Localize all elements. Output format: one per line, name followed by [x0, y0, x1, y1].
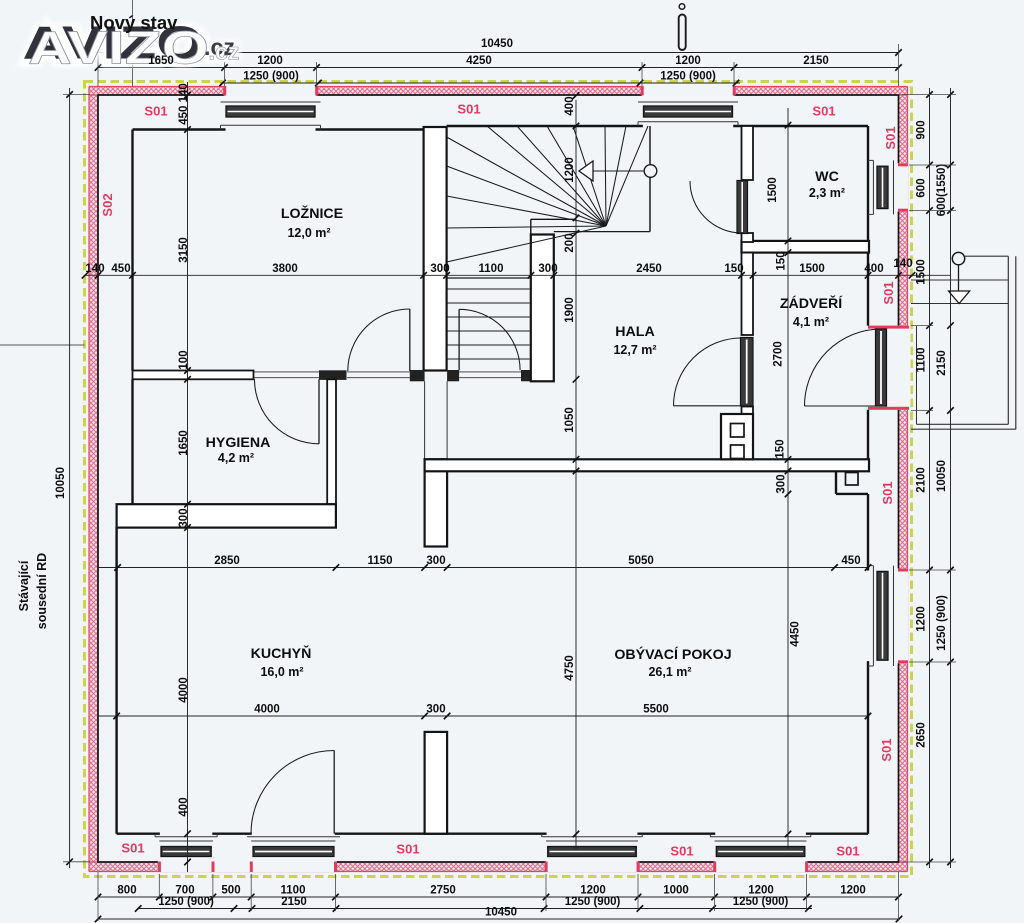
svg-text:2850: 2850 — [214, 555, 240, 567]
svg-text:100: 100 — [178, 350, 190, 369]
svg-text:300: 300 — [430, 263, 449, 275]
svg-text:1250 (900): 1250 (900) — [936, 595, 948, 651]
svg-text:700: 700 — [175, 885, 194, 897]
svg-text:450: 450 — [841, 555, 860, 567]
svg-text:S01: S01 — [121, 841, 144, 856]
svg-text:450: 450 — [111, 263, 130, 275]
svg-text:2150: 2150 — [281, 896, 307, 908]
svg-text:2100: 2100 — [916, 467, 928, 493]
svg-text:800: 800 — [117, 885, 136, 897]
svg-text:S01: S01 — [880, 481, 895, 504]
svg-text:1500: 1500 — [799, 263, 825, 275]
svg-text:2750: 2750 — [430, 885, 456, 897]
svg-text:1200: 1200 — [748, 885, 774, 897]
svg-text:1900: 1900 — [564, 297, 576, 323]
svg-text:1150: 1150 — [368, 555, 393, 567]
svg-text:4750: 4750 — [564, 655, 576, 681]
svg-text:Stávající: Stávající — [17, 560, 31, 611]
svg-text:1200: 1200 — [257, 55, 283, 67]
svg-text:S02: S02 — [100, 193, 115, 216]
svg-text:4450: 4450 — [790, 621, 802, 647]
svg-text:S01: S01 — [883, 126, 898, 149]
svg-text:150: 150 — [775, 439, 787, 458]
svg-text:2150: 2150 — [803, 55, 829, 67]
svg-text:1000: 1000 — [663, 885, 689, 897]
svg-text:200: 200 — [564, 233, 576, 252]
svg-text:4000: 4000 — [254, 704, 280, 716]
svg-text:300: 300 — [776, 474, 788, 493]
svg-text:140: 140 — [893, 258, 912, 270]
svg-text:HYGIENA: HYGIENA — [206, 435, 271, 451]
svg-text:16,0 m²: 16,0 m² — [260, 665, 303, 679]
svg-text:1200: 1200 — [916, 606, 928, 632]
svg-text:1200: 1200 — [564, 157, 576, 183]
svg-text:1250 (900): 1250 (900) — [158, 896, 214, 908]
svg-text:1200: 1200 — [840, 885, 866, 897]
svg-text:1250 (900): 1250 (900) — [565, 896, 621, 908]
svg-text:S01: S01 — [396, 842, 419, 857]
svg-text:1250 (900): 1250 (900) — [243, 71, 299, 83]
svg-text:1100: 1100 — [916, 348, 928, 373]
svg-text:4,1 m²: 4,1 m² — [793, 315, 829, 329]
svg-text:400: 400 — [178, 797, 190, 816]
svg-text:S01: S01 — [881, 281, 896, 304]
svg-text:10050: 10050 — [55, 467, 67, 499]
svg-text:2450: 2450 — [636, 263, 662, 275]
svg-text:2700: 2700 — [773, 341, 785, 367]
svg-text:ZÁDVEŘÍ: ZÁDVEŘÍ — [780, 294, 843, 312]
svg-text:450 140: 450 140 — [178, 83, 190, 125]
svg-text:10450: 10450 — [485, 907, 517, 919]
svg-text:12,7 m²: 12,7 m² — [613, 343, 656, 357]
svg-text:1250 (900): 1250 (900) — [733, 896, 789, 908]
svg-text:300: 300 — [426, 704, 445, 716]
svg-text:OBÝVACÍ POKOJ: OBÝVACÍ POKOJ — [614, 645, 731, 663]
svg-text:1250 (900): 1250 (900) — [660, 71, 716, 83]
svg-text:sousední RD: sousední RD — [35, 553, 49, 629]
svg-text:1100: 1100 — [479, 263, 504, 275]
svg-text:2,3 m²: 2,3 m² — [809, 186, 845, 200]
svg-text:600: 600 — [916, 178, 928, 197]
svg-text:2150: 2150 — [936, 350, 948, 376]
svg-text:400: 400 — [564, 96, 576, 115]
svg-text:150: 150 — [724, 263, 743, 275]
svg-text:12,0 m²: 12,0 m² — [287, 226, 330, 240]
svg-text:2650: 2650 — [916, 722, 928, 748]
svg-text:4250: 4250 — [466, 55, 492, 67]
svg-text:1200: 1200 — [675, 55, 701, 67]
svg-text:1100: 1100 — [281, 885, 306, 897]
svg-text:S01: S01 — [144, 104, 167, 119]
svg-text:5500: 5500 — [643, 704, 669, 716]
svg-text:1650: 1650 — [178, 430, 190, 456]
svg-text:5050: 5050 — [628, 555, 654, 567]
svg-text:1050: 1050 — [564, 407, 576, 433]
svg-text:S01: S01 — [457, 102, 480, 117]
svg-text:S01: S01 — [670, 844, 693, 859]
svg-text:S01: S01 — [812, 104, 835, 119]
svg-text:KUCHYŇ: KUCHYŇ — [251, 644, 312, 662]
svg-text:10050: 10050 — [936, 460, 948, 492]
svg-text:900: 900 — [916, 120, 928, 139]
svg-text:HALA: HALA — [615, 324, 654, 340]
svg-text:400: 400 — [864, 263, 883, 275]
svg-text:4000: 4000 — [178, 677, 190, 703]
svg-text:1500: 1500 — [767, 177, 779, 203]
svg-text:Nový stav: Nový stav — [90, 12, 178, 33]
svg-text:300: 300 — [426, 555, 445, 567]
svg-text:LOŽNICE: LOŽNICE — [281, 204, 343, 222]
svg-text:3150: 3150 — [178, 237, 190, 263]
svg-text:S01: S01 — [836, 844, 859, 859]
svg-text:10450: 10450 — [481, 38, 513, 50]
svg-text:1500: 1500 — [916, 259, 928, 285]
svg-text:150: 150 — [776, 251, 788, 270]
svg-text:S01: S01 — [879, 738, 894, 761]
svg-text:1650: 1650 — [148, 55, 174, 67]
svg-text:WC: WC — [815, 169, 839, 185]
svg-text:3800: 3800 — [272, 263, 298, 275]
svg-text:300: 300 — [538, 263, 557, 275]
svg-text:140: 140 — [85, 263, 104, 275]
svg-text:300: 300 — [178, 508, 190, 527]
svg-text:4,2 m²: 4,2 m² — [218, 451, 254, 465]
svg-text:600(1550): 600(1550) — [936, 164, 948, 217]
svg-text:1200: 1200 — [580, 885, 606, 897]
svg-text:500: 500 — [221, 885, 240, 897]
svg-text:26,1 m²: 26,1 m² — [648, 665, 691, 679]
svg-text:.cz: .cz — [209, 39, 240, 65]
